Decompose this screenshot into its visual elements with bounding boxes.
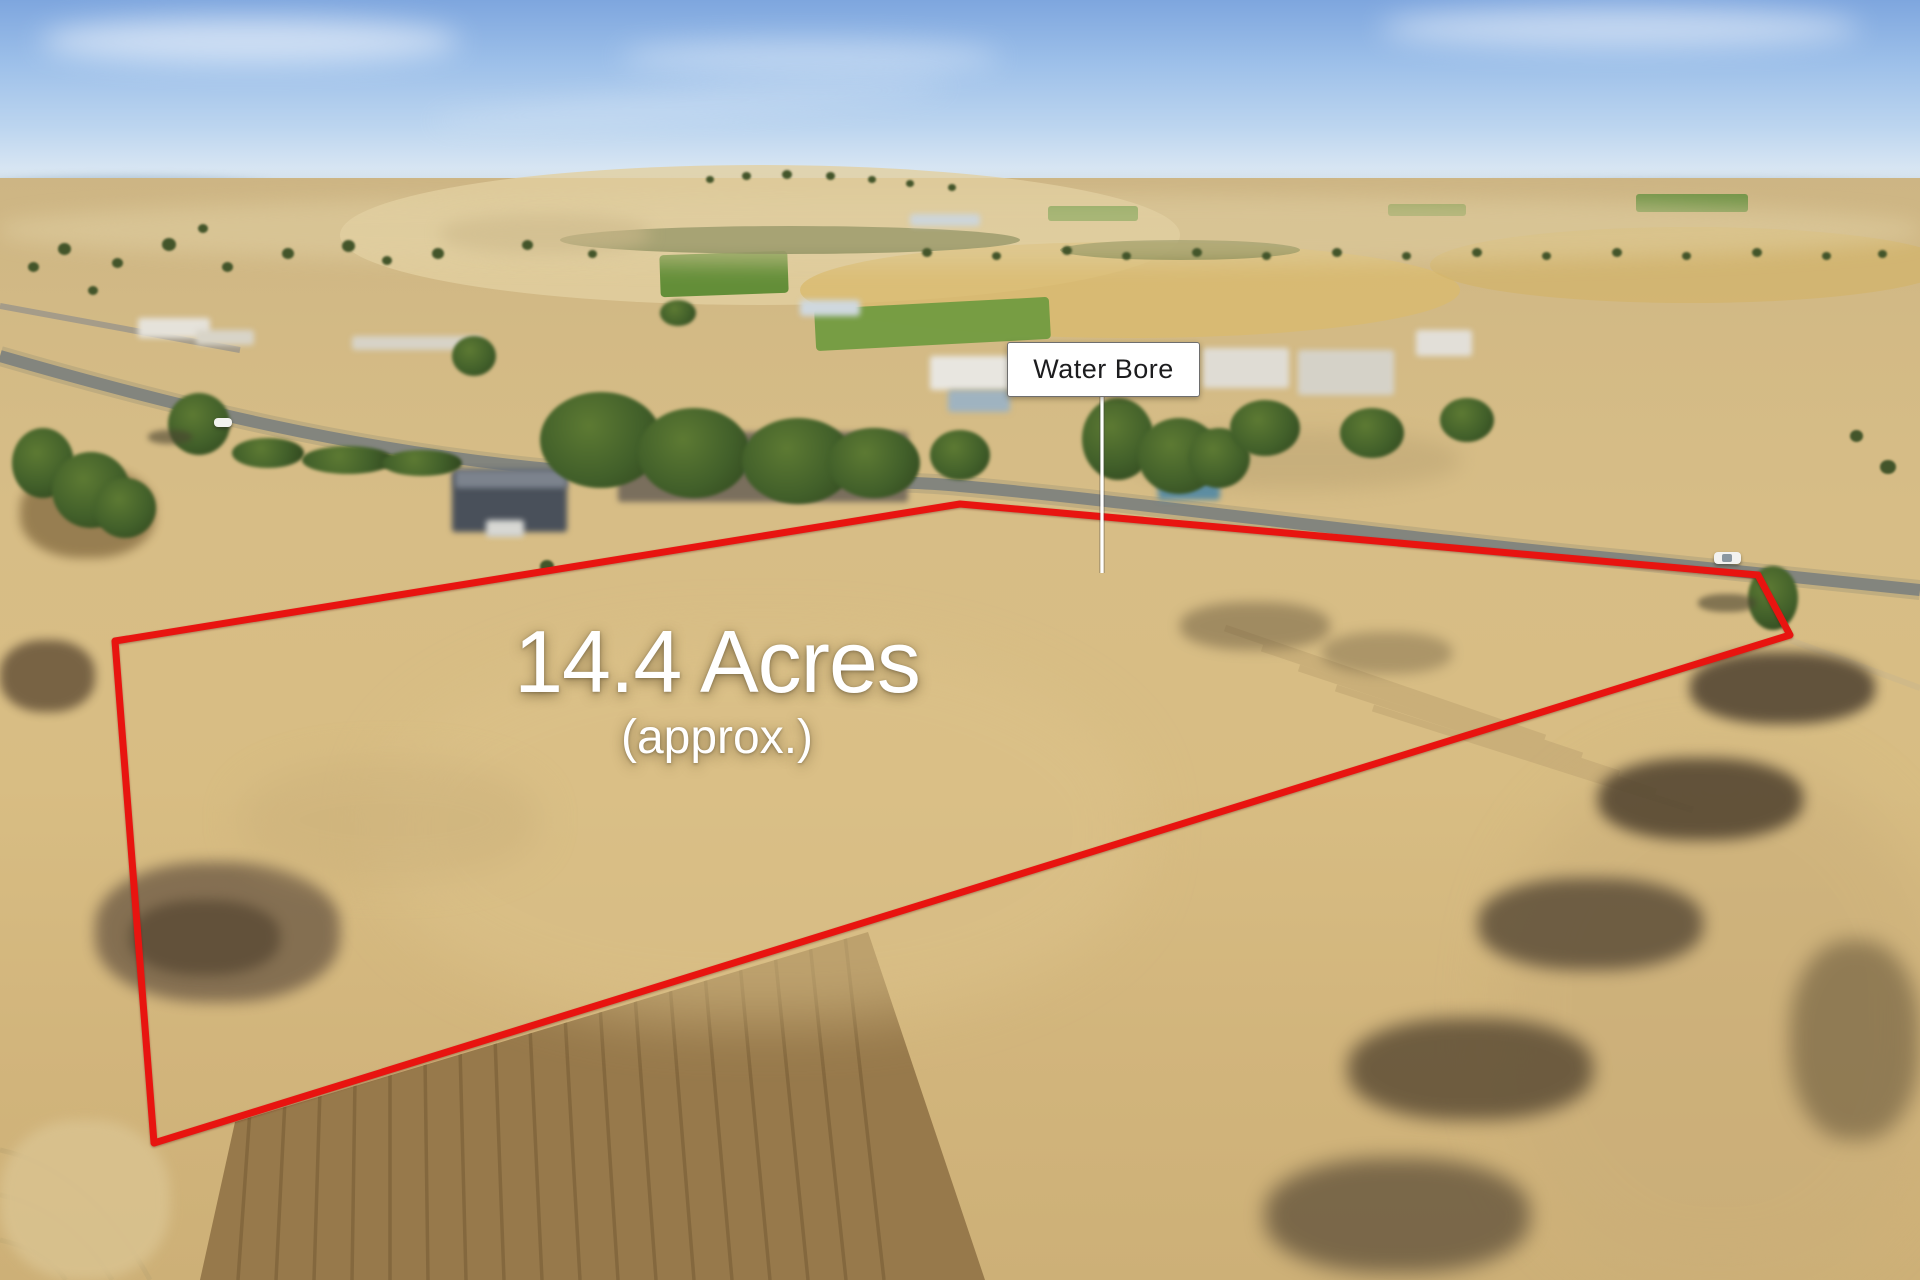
area-approx-text: (approx.) [621, 710, 813, 765]
water-bore-label-text: Water Bore [1033, 354, 1174, 385]
annotation-layer [0, 0, 1920, 1280]
water-bore-label: Water Bore [1007, 342, 1200, 397]
area-label: 14.4 Acres (approx.) [514, 618, 920, 765]
property-boundary [115, 504, 1790, 1143]
aerial-photo: Water Bore 14.4 Acres (approx.) [0, 0, 1920, 1280]
area-size-text: 14.4 Acres [514, 618, 920, 706]
